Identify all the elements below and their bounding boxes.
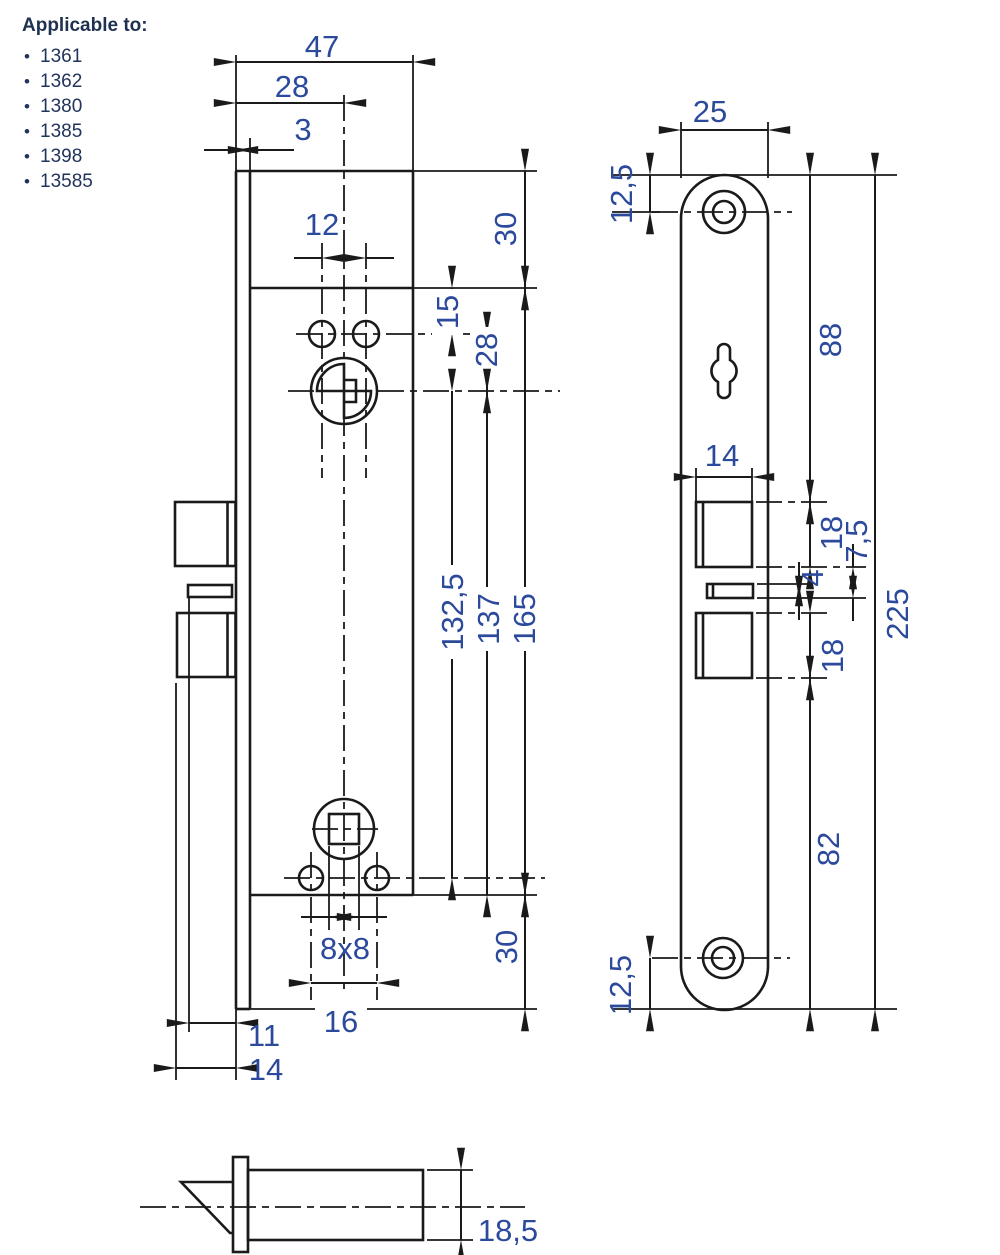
dim-overall-width: 47	[236, 29, 413, 64]
dim-latch-to-slot: 7,5	[839, 519, 874, 621]
dim-label-case-height: 165	[507, 593, 542, 645]
dim-case-top-to-holes: 15	[430, 288, 465, 335]
dim-hole-to-bottom: 12,5	[603, 955, 650, 1015]
deadlocking-plunger	[188, 585, 232, 597]
faceplate-outline	[681, 175, 768, 1010]
latch-detail-outline	[181, 1157, 423, 1252]
side-view: 47 28 3 12 30	[175, 29, 560, 1087]
dim-latch-height: 18,5	[427, 1170, 538, 1248]
dim-label-cylinder-to-lower-holes: 132,5	[435, 573, 470, 651]
dim-label-slot-height: 4	[795, 569, 830, 586]
dim-label-deadbolt-projection: 11	[248, 1018, 280, 1053]
dim-case-height: 165	[507, 288, 542, 895]
latch-detail-view: 18,5	[140, 1157, 538, 1252]
dim-deadbolt-projection: 11	[189, 1018, 280, 1053]
dim-bottom-margin: 30	[489, 895, 525, 1009]
deadbolt-cutout	[696, 613, 752, 678]
dim-latch-projection: 14	[176, 1052, 283, 1087]
keyhole-cutout	[711, 344, 736, 398]
dim-label-cutout-width: 14	[705, 438, 739, 473]
deadbolt	[177, 613, 236, 677]
dim-label-deadbolt-cutout-height: 18	[815, 639, 850, 673]
dim-cylinder-to-lower-holes: 132,5	[435, 391, 470, 878]
dim-label-latch-height: 18,5	[478, 1213, 538, 1248]
lock-dimension-drawing-page: Applicable to: 1361 1362 1380 1385 1398 …	[0, 0, 1000, 1255]
dim-faceplate-total-height: 225	[875, 175, 915, 1009]
dim-deadbolt-cutout-height: 18	[810, 613, 850, 678]
dim-label-lower-hole-spacing: 16	[324, 1004, 358, 1039]
latch-cutout	[696, 502, 752, 567]
dim-label-faceplate-total-height: 225	[880, 588, 915, 640]
dim-label-overall-width: 47	[305, 29, 339, 64]
faceplate-extension-lines	[612, 122, 897, 1009]
plunger-slot	[707, 584, 753, 598]
dim-deadbolt-to-bottom: 82	[810, 678, 846, 1009]
dim-label-top-to-latch-cutout: 88	[813, 323, 848, 357]
dim-label-top-hole-spacing: 12	[305, 207, 339, 242]
dim-label-faceplate-width: 25	[693, 94, 727, 129]
dim-cylinder-to-case-bottom: 137	[471, 391, 506, 895]
latch-bolt	[175, 502, 236, 566]
dim-top-to-hole: 12,5	[604, 164, 660, 224]
dim-label-case-top-to-holes: 15	[430, 295, 465, 329]
dim-faceplate-width: 25	[681, 94, 768, 130]
faceplate-view: 25 12,5 88 14 18	[603, 94, 915, 1015]
dim-label-holes-to-cylinder: 28	[469, 333, 504, 367]
dim-label-spindle-square: 8x8	[320, 931, 370, 966]
dim-lower-hole-spacing: 16	[311, 983, 377, 1039]
side-view-extension-lines	[176, 55, 537, 1080]
dim-label-hole-to-bottom: 12,5	[603, 955, 638, 1015]
dim-label-latch-to-slot: 7,5	[839, 519, 874, 562]
dim-label-cylinder-to-case-bottom: 137	[471, 593, 506, 645]
dim-holes-to-cylinder: 28	[469, 327, 504, 391]
technical-drawing: 47 28 3 12 30	[0, 0, 1000, 1255]
dim-label-deadbolt-to-bottom: 82	[811, 832, 846, 866]
dim-backset: 28	[236, 69, 344, 104]
dim-cutout-width: 14	[696, 438, 752, 477]
dim-label-latch-projection: 14	[249, 1052, 283, 1087]
dim-label-top-margin: 30	[488, 212, 523, 246]
dim-label-top-to-hole: 12,5	[604, 164, 639, 224]
dim-label-bottom-margin: 30	[489, 930, 524, 964]
dim-label-backset: 28	[275, 69, 309, 104]
forend-edge	[236, 171, 250, 1009]
dim-label-forend-thickness: 3	[294, 112, 311, 147]
dim-forend-thickness: 3	[204, 112, 312, 150]
dim-slot-height: 4	[795, 562, 830, 620]
dim-top-margin: 30	[488, 171, 525, 288]
dim-top-to-latch-cutout: 88	[810, 175, 848, 502]
